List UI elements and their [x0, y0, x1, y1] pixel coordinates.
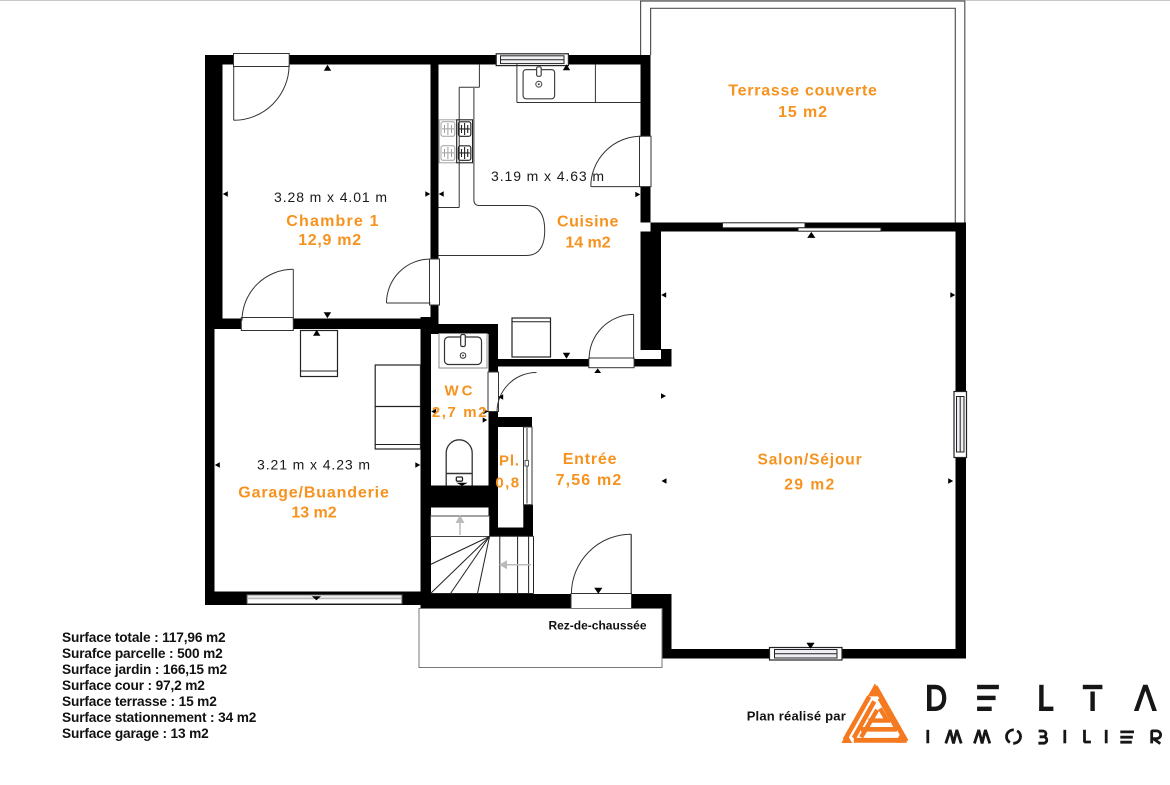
svg-text:3.28 m x 4.01 m: 3.28 m x 4.01 m — [274, 189, 388, 205]
svg-text:29 m2: 29 m2 — [784, 476, 835, 493]
svg-text:Garage/Buanderie: Garage/Buanderie — [238, 485, 389, 502]
svg-text:Surafce parcelle : 500 m2: Surafce parcelle : 500 m2 — [62, 646, 223, 661]
svg-text:13 m2: 13 m2 — [291, 505, 336, 522]
svg-text:Surface garage : 13 m2: Surface garage : 13 m2 — [62, 726, 209, 741]
svg-text:Chambre 1: Chambre 1 — [286, 213, 380, 230]
svg-text:Rez-de-chaussée: Rez-de-chaussée — [548, 618, 646, 632]
svg-text:12,9 m2: 12,9 m2 — [298, 232, 362, 249]
svg-text:3.19 m x 4.63 m: 3.19 m x 4.63 m — [491, 168, 605, 184]
svg-text:0,8: 0,8 — [495, 474, 520, 491]
svg-text:Entrée: Entrée — [563, 451, 618, 468]
svg-text:14 m2: 14 m2 — [565, 235, 610, 252]
svg-text:Salon/Séjour: Salon/Séjour — [758, 451, 863, 468]
svg-text:Surface stationnement : 34 m2: Surface stationnement : 34 m2 — [62, 710, 257, 725]
svg-text:2,7 m2: 2,7 m2 — [432, 404, 488, 421]
svg-text:Surface terrasse : 15 m2: Surface terrasse : 15 m2 — [62, 694, 217, 709]
svg-text:WC: WC — [445, 382, 476, 399]
svg-text:Surface totale : 117,96 m2: Surface totale : 117,96 m2 — [62, 630, 226, 645]
svg-text:3.21 m x 4.23 m: 3.21 m x 4.23 m — [257, 456, 371, 472]
svg-text:7,56 m2: 7,56 m2 — [556, 472, 623, 489]
svg-text:Surface cour : 97,2 m2: Surface cour : 97,2 m2 — [62, 678, 205, 693]
svg-text:15 m2: 15 m2 — [778, 104, 828, 121]
svg-text:Pl.: Pl. — [499, 452, 520, 469]
svg-text:Surface jardin : 166,15 m2: Surface jardin : 166,15 m2 — [62, 662, 228, 677]
svg-text:Cuisine: Cuisine — [557, 214, 619, 231]
svg-text:Terrasse couverte: Terrasse couverte — [728, 83, 877, 100]
svg-text:Plan réalisé par: Plan réalisé par — [747, 708, 846, 723]
